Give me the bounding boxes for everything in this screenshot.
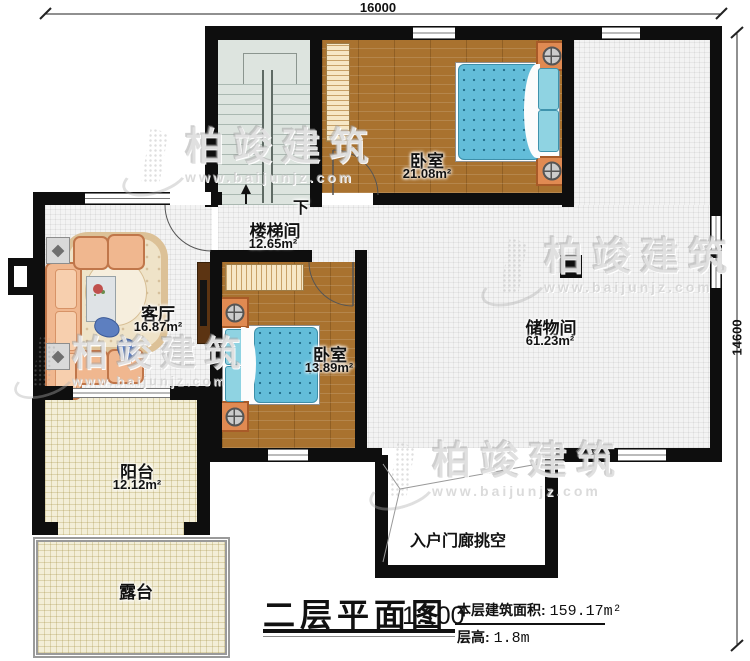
wall-bedroom-top-right bbox=[562, 26, 574, 207]
side-table-2 bbox=[46, 343, 70, 370]
label-living-area: 16.87m² bbox=[134, 319, 182, 334]
watermark-logo bbox=[133, 128, 177, 184]
stair-rail bbox=[262, 70, 273, 203]
label-terrace: 露台 bbox=[119, 578, 153, 603]
side-table-1 bbox=[46, 237, 70, 264]
wall-balcony-left bbox=[32, 398, 45, 522]
floor-area-label: 本层建筑面积: bbox=[457, 602, 546, 618]
floor-plan: 16000 14600 卧室 21.08m² 楼梯间 12.65m² 下 客厅 … bbox=[0, 0, 750, 661]
dim-height-label: 14600 bbox=[730, 313, 745, 363]
armchair-top-1 bbox=[73, 236, 109, 270]
title-underline-thin bbox=[263, 636, 455, 637]
column-storage bbox=[560, 255, 582, 278]
wall-balcony-left-foot bbox=[32, 522, 58, 535]
wall-bedroom-mid-right bbox=[355, 250, 367, 462]
title-block-divider bbox=[455, 623, 605, 625]
wall-top bbox=[205, 26, 722, 40]
wall-porch-right bbox=[545, 455, 558, 578]
dim-tick bbox=[731, 640, 743, 651]
wall-living-balcony-right bbox=[170, 386, 210, 400]
coffee-table bbox=[86, 276, 116, 322]
floor-area-value: 159.17m² bbox=[550, 603, 622, 620]
label-bedroom-mid-area: 13.89m² bbox=[305, 360, 353, 375]
bed-top-pillow-2 bbox=[538, 110, 559, 152]
sofa-cushion bbox=[55, 269, 77, 309]
label-storage-area: 61.23m² bbox=[526, 333, 574, 348]
label-bedroom-top-area: 21.08m² bbox=[403, 166, 451, 181]
floor-height-row: 层高: 1.8m bbox=[457, 627, 530, 647]
dim-width-label: 16000 bbox=[360, 0, 396, 15]
wall-balcony-right-foot bbox=[184, 522, 210, 535]
table-lamp-icon bbox=[52, 350, 65, 363]
wall-living-balcony-left bbox=[33, 386, 73, 400]
window-top-bedroom bbox=[413, 27, 455, 39]
window-bottom-right bbox=[618, 449, 666, 461]
wall-balcony-right bbox=[197, 398, 210, 522]
window-bedroom-mid-bottom bbox=[268, 449, 308, 461]
wall-bedroom-mid-left bbox=[210, 250, 222, 462]
window-top-storage bbox=[602, 27, 640, 39]
lamp-icon bbox=[542, 162, 561, 181]
wall-porch-bottom bbox=[375, 565, 558, 578]
armchair-top-2 bbox=[107, 234, 145, 270]
label-stairwell-area: 12.65m² bbox=[249, 236, 297, 251]
dim-tick bbox=[40, 8, 51, 19]
armchair-bottom-1 bbox=[75, 350, 109, 385]
label-porch: 入户门廊挑空 bbox=[410, 527, 506, 551]
window-right-1 bbox=[711, 216, 721, 250]
lamp-icon bbox=[542, 47, 561, 66]
wardrobe-bedroom-mid bbox=[225, 264, 304, 291]
nightstand-mid-1 bbox=[220, 297, 249, 328]
lamp-icon bbox=[225, 303, 244, 322]
dim-tick bbox=[731, 27, 743, 38]
table-lamp-icon bbox=[52, 244, 65, 257]
floor-area-row: 本层建筑面积: 159.17m² bbox=[457, 600, 622, 620]
wall-bedroom-mid-top bbox=[210, 250, 312, 262]
bed-top-pillow-1 bbox=[538, 68, 559, 110]
wall-bedroom-top-bottom bbox=[373, 193, 574, 205]
label-balcony-area: 12.12m² bbox=[113, 477, 161, 492]
tv-icon bbox=[200, 280, 207, 326]
floor-height-label: 层高: bbox=[457, 629, 490, 645]
window-living-top bbox=[85, 193, 170, 204]
living-door-opening bbox=[170, 192, 211, 205]
sliding-door-balcony bbox=[73, 388, 170, 398]
label-stair-down: 下 bbox=[293, 194, 309, 218]
dim-tick bbox=[716, 8, 727, 19]
wall-stair-bedroom bbox=[310, 26, 322, 207]
plan-scale: 1:100 bbox=[402, 602, 465, 631]
flue-hole bbox=[14, 266, 27, 287]
lamp-icon bbox=[225, 407, 244, 426]
nightstand-mid-2 bbox=[220, 401, 249, 432]
wall-porch-left bbox=[375, 455, 388, 578]
wall-living-left bbox=[33, 192, 45, 402]
floor-height-value: 1.8m bbox=[494, 630, 530, 647]
wall-stair-left bbox=[205, 26, 218, 207]
window-right-2 bbox=[711, 258, 721, 288]
flower-vase bbox=[93, 284, 103, 294]
wardrobe-bedroom-top bbox=[326, 43, 350, 142]
